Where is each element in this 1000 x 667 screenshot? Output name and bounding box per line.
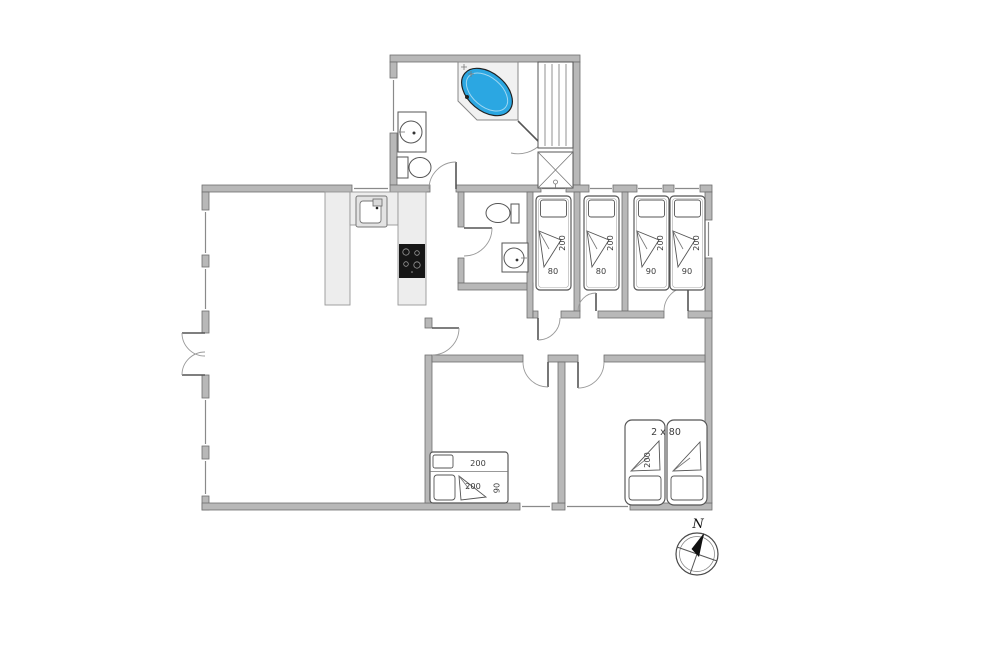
bunk-bed: 200 200 90	[430, 452, 508, 503]
bedroom5-door	[578, 362, 604, 388]
double-bed-length-label: 200	[642, 452, 652, 468]
compass-north-label: N	[691, 517, 704, 532]
bedroom1-door	[538, 318, 560, 340]
pillow	[671, 476, 703, 500]
bunk-top-length-label: 200	[470, 458, 486, 468]
bed-bay-3a: 200 90	[634, 196, 669, 290]
bed-width-label: 90	[682, 266, 692, 276]
floor-plan: 200 80 200 80 200 90 200 90 2	[0, 0, 1000, 667]
bed-width-label: 90	[646, 266, 656, 276]
cooktop	[399, 244, 425, 278]
bed-length-label: 200	[691, 235, 701, 251]
bedroom3-door	[664, 287, 688, 311]
pillow	[589, 200, 615, 217]
bed-width-label: 80	[548, 266, 558, 276]
wc-door	[464, 228, 492, 256]
pillow	[675, 200, 701, 217]
double-bed-label: 2 x 80	[651, 427, 681, 438]
hall-door	[432, 328, 459, 355]
bedroom2-door	[578, 293, 596, 311]
pillow	[629, 476, 661, 500]
bathroom	[397, 59, 573, 188]
wc-sink	[502, 243, 528, 272]
pillow	[639, 200, 665, 217]
bathroom-sink	[398, 112, 426, 152]
bunk-bottom-length-label: 200	[465, 481, 481, 491]
bunk-width-label: 90	[492, 483, 502, 493]
pillow	[541, 200, 567, 217]
double-bed: 2 x 80 200	[625, 420, 707, 505]
kitchen	[325, 192, 426, 305]
bed-length-label: 200	[655, 235, 665, 251]
bathroom-door	[429, 162, 456, 189]
bathroom-toilet	[397, 157, 431, 178]
compass: N	[676, 517, 718, 575]
kitchen-counter-left	[325, 192, 350, 305]
bed-bay-2: 200 80	[584, 196, 619, 290]
bed-length-label: 200	[605, 235, 615, 251]
sauna-door	[511, 121, 541, 154]
bedroom4-door	[523, 362, 548, 387]
wc-toilet	[486, 204, 519, 224]
kitchen-sink	[356, 196, 387, 227]
bed-length-label: 200	[557, 235, 567, 251]
bed-bay-1: 200 80	[536, 196, 571, 290]
bed-bay-3b: 200 90	[670, 196, 705, 290]
wc-room	[486, 204, 528, 273]
sauna-bench	[538, 62, 573, 148]
pillow	[433, 455, 453, 468]
pillow	[434, 475, 455, 500]
bed-width-label: 80	[596, 266, 606, 276]
terrace-double-door	[182, 333, 205, 375]
floor-plan-page: 200 80 200 80 200 90 200 90 2	[0, 0, 1000, 667]
shower	[538, 152, 573, 188]
tub-faucet	[465, 95, 469, 99]
